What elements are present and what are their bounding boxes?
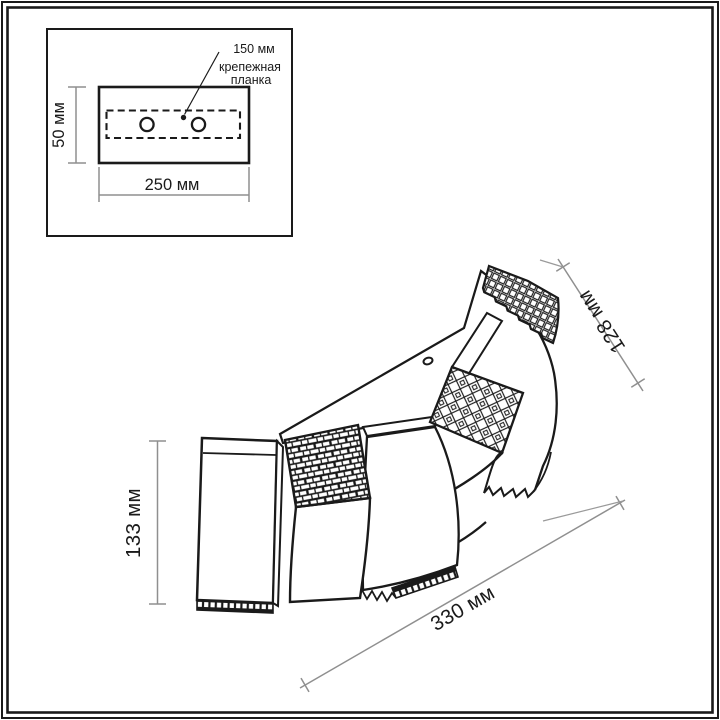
shade-mosaic-body [290,498,370,602]
shade-left-bottom-strip [197,601,273,613]
mounting-plate-inset: 150 мм крепежная планка 50 мм 250 мм [47,29,292,236]
inset-width-label: 250 мм [145,176,200,194]
bracket-label-line1: крепежная [219,60,281,74]
shade-mosaic [285,425,370,602]
shade-center-body [363,427,459,590]
shade-left-face [197,438,277,603]
shade-left [197,438,283,613]
mounting-plate [99,87,249,163]
mounting-hole-right [192,118,205,131]
bracket-label-line2: планка [231,73,272,87]
technical-drawing: 150 мм крепежная планка 50 мм 250 мм [0,0,720,720]
mounting-hole-left [140,118,153,131]
crystal-panel-mosaic [285,425,370,507]
height-dimension-label: 133 мм [122,488,145,558]
hole-spacing-label: 150 мм [233,42,275,56]
inset-height-label: 50 мм [50,102,68,148]
leader-dot [181,115,186,120]
